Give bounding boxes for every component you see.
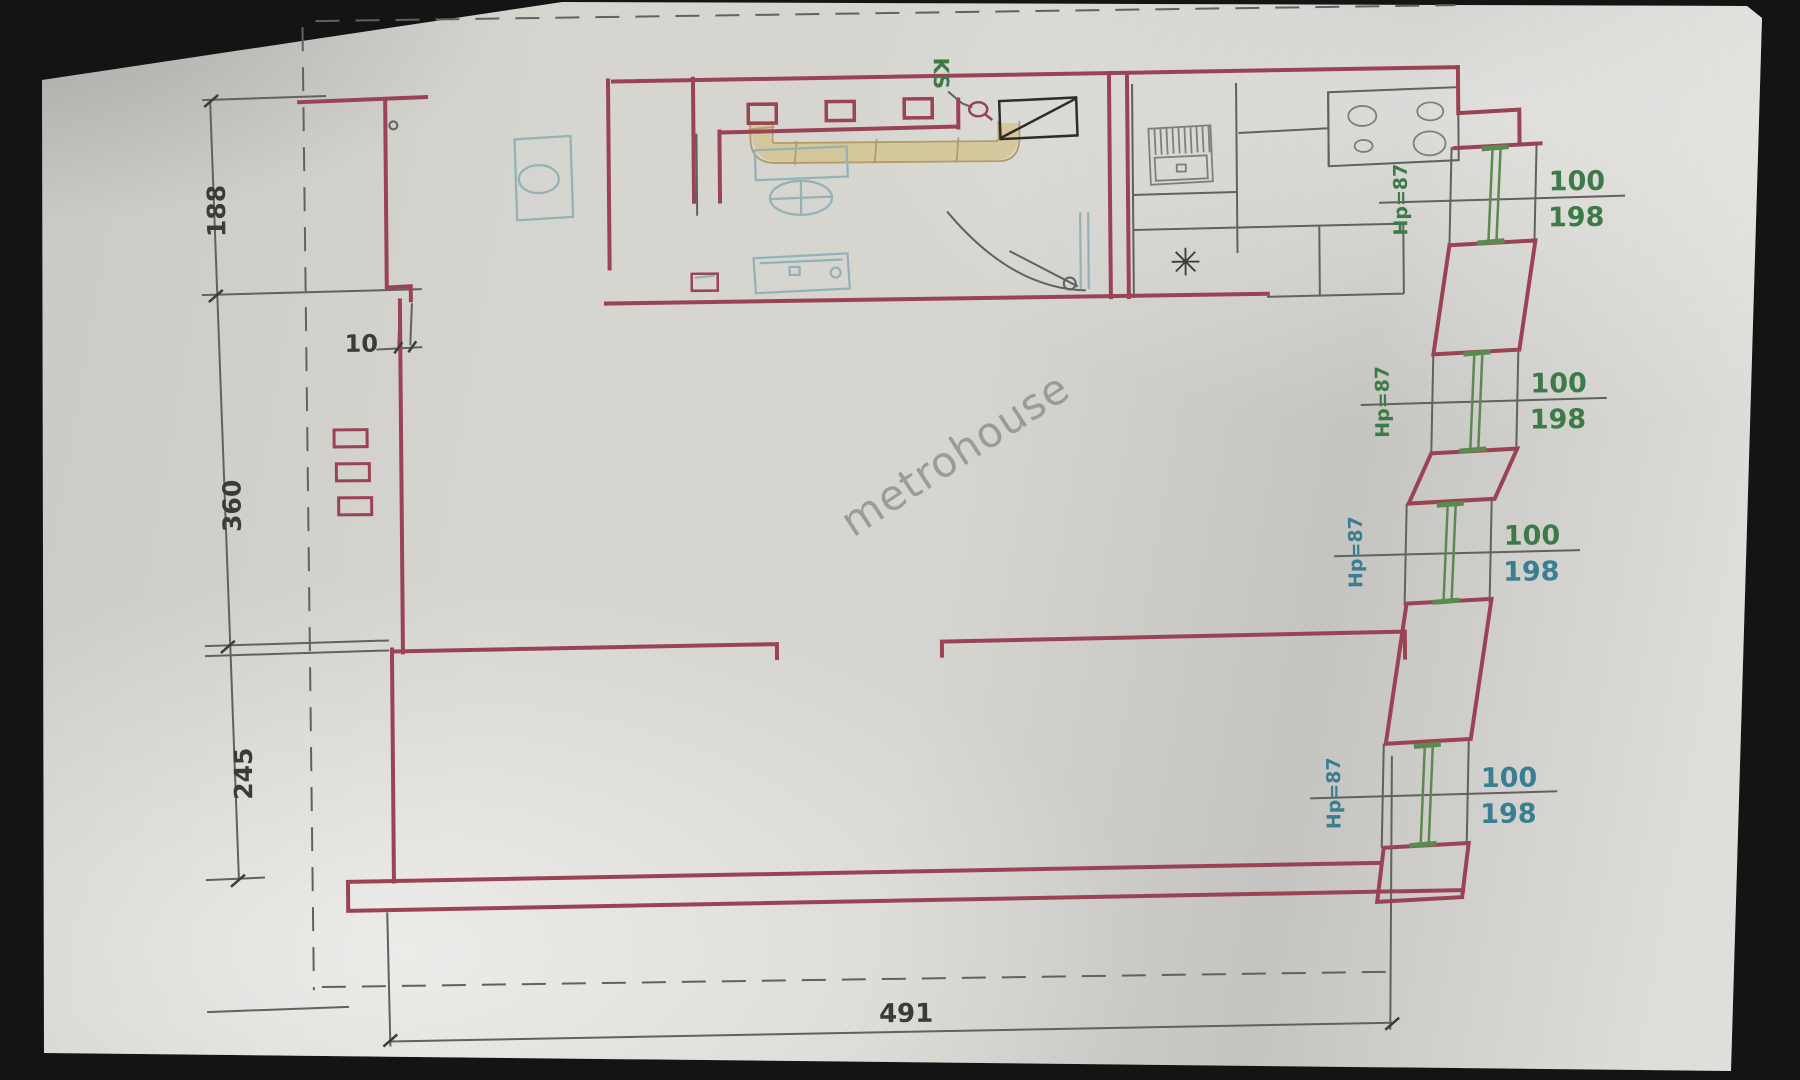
- window2-height: 198: [1530, 404, 1587, 435]
- window3-height: 198: [1503, 556, 1560, 587]
- window3-width: 100: [1504, 520, 1561, 551]
- window4-height: 198: [1480, 798, 1537, 829]
- dim-245: 245: [229, 748, 258, 800]
- window3-sill: Hp=87: [1345, 516, 1368, 588]
- window1-width: 100: [1549, 166, 1606, 197]
- bottom-wall: [348, 862, 1463, 911]
- hall-basin: [514, 136, 573, 221]
- flue-squares: [748, 99, 932, 124]
- interior-wall-left: [392, 644, 777, 661]
- axis-dashed-left: [303, 27, 314, 990]
- cooktop-outline: [1328, 87, 1459, 166]
- sill-height-labels: Hp=87 Hp=87 Hp=87 Hp=87: [1318, 164, 1418, 830]
- drainboard-hatch: [1154, 125, 1209, 154]
- left-wall-squares: [334, 430, 372, 515]
- axis-dashed-top: [315, 5, 1455, 21]
- floor-plan-drawing: ✳: [0, 0, 1800, 1080]
- asterisk-symbol: ✳: [1169, 240, 1201, 284]
- dim-188: 188: [202, 185, 231, 237]
- top-wall: [613, 67, 1458, 81]
- ks-outlet-icon: [969, 102, 987, 116]
- photo-of-floor-plan: ✳: [0, 0, 1800, 1080]
- shower-door: [1080, 212, 1089, 289]
- dim-491: 491: [879, 999, 934, 1029]
- window2-sill: Hp=87: [1371, 366, 1394, 438]
- interior-wall-right: [942, 632, 1405, 662]
- kitchen-sink: [1148, 125, 1213, 185]
- shaft-box: [999, 97, 1077, 139]
- cooktop-burners: [1348, 102, 1445, 156]
- window4-sill: Hp=87: [1323, 757, 1346, 829]
- axis-dashed-bottom: [322, 972, 1394, 987]
- ventilation-duct: [748, 119, 1019, 165]
- dim-360: 360: [217, 480, 246, 532]
- window1-height: 198: [1548, 202, 1605, 233]
- window1-sill: Hp=87: [1390, 164, 1413, 236]
- ks-label: KS: [929, 58, 953, 90]
- dim-10: 10: [344, 330, 378, 358]
- window4-width: 100: [1481, 762, 1538, 793]
- window2-width: 100: [1530, 368, 1587, 399]
